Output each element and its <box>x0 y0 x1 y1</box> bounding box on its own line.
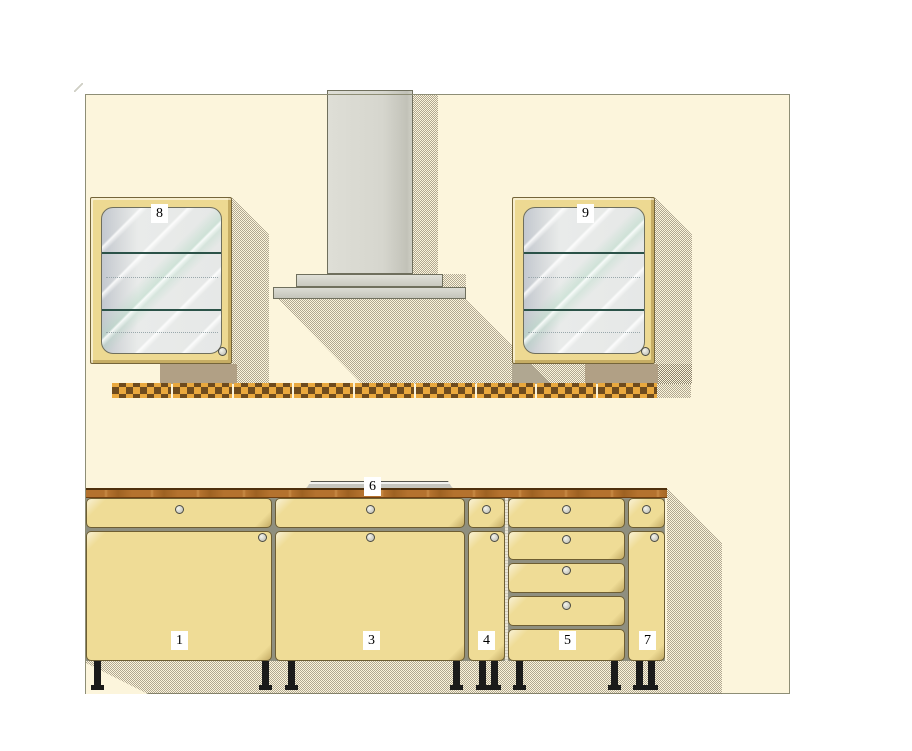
shelf-line <box>524 309 644 311</box>
shelf-line <box>102 309 221 311</box>
door-knob <box>218 347 227 356</box>
item-label-8: 8 <box>151 204 168 223</box>
shelf-dotted-line <box>106 332 218 333</box>
corner-marker <box>74 83 83 92</box>
drawer-knob <box>562 566 571 575</box>
drawer-knob <box>366 505 375 514</box>
glass-door <box>101 207 222 354</box>
cabinet-leg <box>288 661 295 690</box>
cabinet-leg <box>636 661 643 690</box>
drawer-knob <box>642 505 651 514</box>
item-label-9: 9 <box>577 204 594 223</box>
tile-segment <box>294 383 353 398</box>
tile-segment <box>416 383 475 398</box>
cabinet-leg <box>516 661 523 690</box>
item-label-6: 6 <box>364 477 381 496</box>
backsplash-tile-strip[interactable] <box>112 383 657 398</box>
item-label-1: 1 <box>171 631 188 650</box>
drawer-knob <box>175 505 184 514</box>
cabinet-leg <box>262 661 269 690</box>
door-knob <box>366 533 375 542</box>
kitchen-elevation-canvas: 8 9 6 1 3 4 5 7 <box>0 0 912 751</box>
tile-segment <box>477 383 536 398</box>
door-knob <box>650 533 659 542</box>
glass-door <box>523 207 645 354</box>
tile-segment <box>173 383 232 398</box>
contact-shadow-cabinet-9 <box>585 364 658 384</box>
shelf-dotted-line <box>106 277 218 278</box>
tile-segment <box>234 383 293 398</box>
shelf-dotted-line <box>528 277 640 278</box>
cabinet-leg <box>648 661 655 690</box>
shelf-dotted-line <box>528 332 640 333</box>
tile-segment <box>537 383 596 398</box>
hood-chimney <box>327 90 413 274</box>
shelf-line <box>102 252 221 254</box>
shadow-right-of-tiles <box>657 384 691 398</box>
hood-upper-plate <box>296 274 443 287</box>
item-label-4: 4 <box>478 631 495 650</box>
door-knob <box>258 533 267 542</box>
shadow-base-run <box>86 661 667 694</box>
drawer-knob <box>562 505 571 514</box>
drawer-knob <box>562 601 571 610</box>
cabinet-leg <box>94 661 101 690</box>
hood-lower-plate <box>273 287 466 299</box>
shelf-line <box>524 252 644 254</box>
drawer-knob <box>562 535 571 544</box>
door-knob <box>490 533 499 542</box>
item-label-3: 3 <box>363 631 380 650</box>
cabinet-leg <box>491 661 498 690</box>
wall-top-edge-line <box>327 94 413 95</box>
tile-segment <box>598 383 657 398</box>
drawer-knob <box>482 505 491 514</box>
door-knob <box>641 347 650 356</box>
cabinet-leg <box>453 661 460 690</box>
item-label-7: 7 <box>639 631 656 650</box>
shadow-chimney-right <box>413 95 438 275</box>
cabinet-leg <box>611 661 618 690</box>
item-label-5: 5 <box>559 631 576 650</box>
tile-segment <box>112 383 171 398</box>
tile-segment <box>355 383 414 398</box>
contact-shadow-cabinet-8 <box>160 364 237 384</box>
cabinet-leg <box>479 661 486 690</box>
